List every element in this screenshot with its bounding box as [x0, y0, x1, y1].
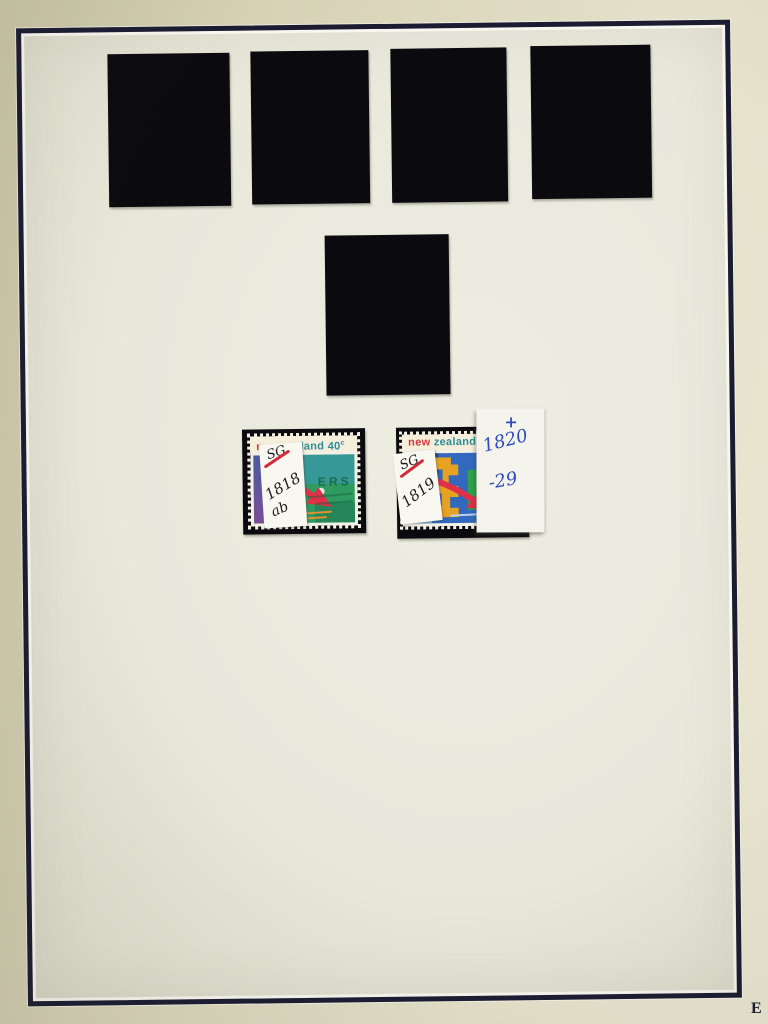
denomination: 40c	[328, 440, 345, 452]
stamp-mount-2	[250, 50, 370, 204]
catalog-number: 1819	[398, 474, 439, 511]
stamp-mount-left-stamp: new zealand 40c ERS	[242, 428, 366, 534]
stamp-mount-3	[390, 47, 508, 202]
stamp-mount-middle	[325, 234, 451, 396]
catalog-label-right: SG 1819	[393, 449, 443, 524]
stamp-mount-1	[107, 53, 231, 207]
album-photo: new zealand 40c ERS	[0, 0, 768, 1024]
stamp-mount-4	[530, 45, 652, 199]
slip-number-range-end: -29	[487, 468, 519, 494]
slip-number-range-start: 1820	[481, 425, 531, 457]
catalog-label-left: SG 1818 ab	[259, 442, 307, 529]
note-slip: + 1820 -29	[476, 408, 544, 532]
country-word-new: new	[408, 436, 430, 448]
album-page: new zealand 40c ERS	[16, 20, 742, 1007]
country-word-zealand: zealand	[434, 436, 477, 449]
postmark-text: ERS	[318, 474, 352, 488]
page-corner-mark: E	[751, 1000, 762, 1018]
